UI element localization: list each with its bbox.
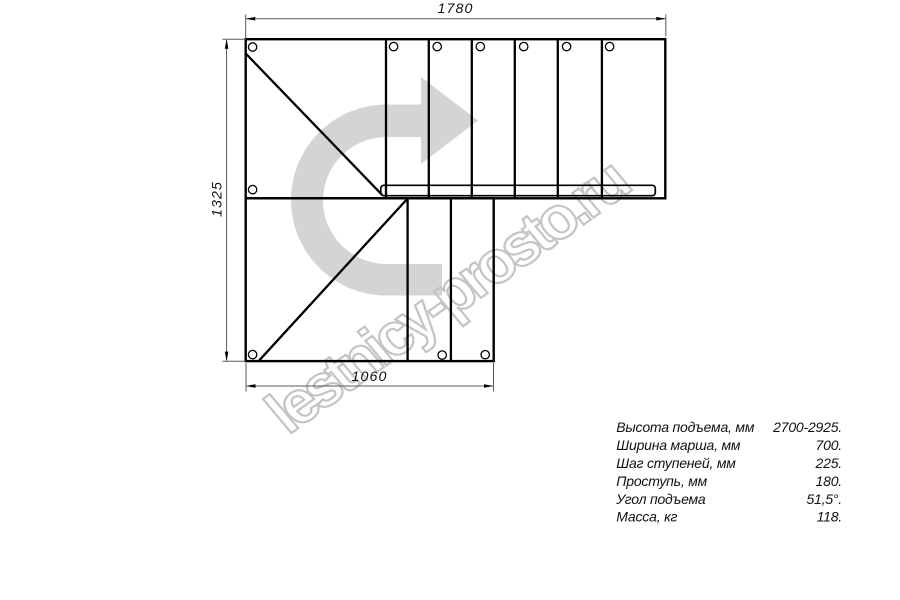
svg-text:Шаг ступеней, мм: Шаг ступеней, мм [616,455,736,471]
svg-text:700.: 700. [816,437,842,453]
svg-text:51,5°.: 51,5°. [806,491,842,507]
svg-text:Масса, кг: Масса, кг [616,509,677,525]
svg-text:Высота подъема, мм: Высота подъема, мм [616,419,755,435]
svg-text:1780: 1780 [438,1,474,17]
svg-text:Угол подъема: Угол подъема [615,491,706,507]
svg-text:2700-2925.: 2700-2925. [772,419,842,435]
svg-text:118.: 118. [817,509,842,525]
svg-text:Ширина марша, мм: Ширина марша, мм [616,437,741,453]
svg-text:1060: 1060 [352,369,388,385]
svg-text:Проступь, мм: Проступь, мм [616,473,707,489]
svg-text:180.: 180. [816,473,842,489]
svg-text:1325: 1325 [210,181,226,217]
svg-text:225.: 225. [815,455,842,471]
